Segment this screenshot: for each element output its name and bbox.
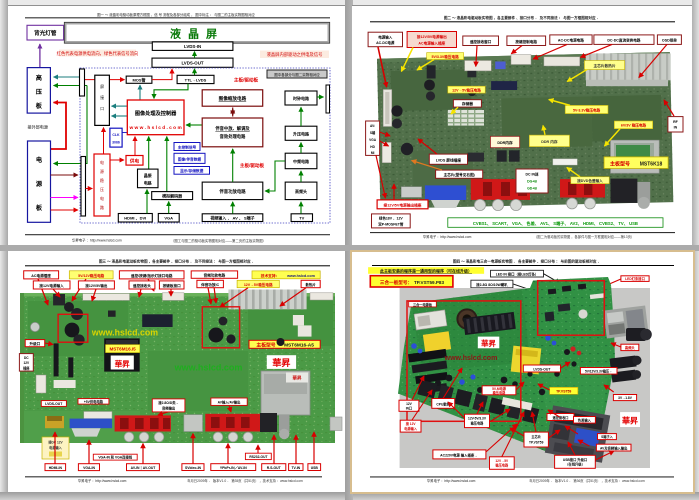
svg-text:12V: 12V (406, 402, 413, 406)
svg-text:电源输入: 电源输入 (378, 34, 392, 39)
svg-text:主板型号: 主板型号 (256, 342, 275, 349)
svg-text:DC IN迷: DC IN迷 (525, 172, 539, 177)
svg-text:12V-5V/3.3V: 12V-5V/3.3V (468, 417, 487, 421)
svg-text:稳: 稳 (100, 178, 104, 183)
svg-text:板: 板 (36, 102, 43, 110)
svg-text:电路: 电路 (144, 180, 152, 186)
svg-text:LED IN 接口（接LED灯条）: LED IN 接口（接LED灯条） (496, 271, 539, 276)
svg-text:电源输入: 电源输入 (49, 445, 63, 450)
svg-text:晶振: 晶振 (144, 172, 152, 178)
svg-text:LVDS-OUT: LVDS-OUT (533, 367, 551, 371)
svg-text:高: 高 (36, 74, 42, 82)
svg-text:电: 电 (100, 160, 104, 165)
svg-text:www.hslcd.com: www.hslcd.com (286, 274, 315, 278)
svg-text:S端: S端 (370, 130, 376, 135)
svg-text:主板/驱动板: 主板/驱动板 (240, 162, 265, 169)
svg-text:5V-3.3V稳压电路: 5V-3.3V稳压电路 (573, 107, 601, 112)
svg-text:AC220V电源 输入插座 ．: AC220V电源 输入插座 ． (440, 453, 478, 458)
svg-text:DC-DC直流变换电路: DC-DC直流变换电路 (607, 38, 641, 43)
svg-text:GD+B: GD+B (527, 187, 537, 191)
svg-text:12V→5V稳压电路: 12V→5V稳压电路 (244, 282, 273, 287)
svg-text:TTL→LVDS: TTL→LVDS (185, 77, 207, 82)
svg-text:口: 口 (100, 107, 104, 111)
svg-text:華昇: 華昇 (622, 416, 638, 426)
svg-text:高频头: 高频头 (625, 345, 636, 350)
svg-text:双P-MOSFET管: 双P-MOSFET管 (377, 222, 404, 227)
svg-text:存储器: 存储器 (462, 101, 473, 106)
svg-text:YPbPr-IN／AV-IN: YPbPr-IN／AV-IN (220, 465, 247, 470)
svg-text:www.hslcd.com: www.hslcd.com (91, 328, 158, 338)
svg-text:華昇: 華昇 (115, 358, 131, 368)
svg-text:图四 ～ 液晶彩电三合一电源板实物图 ． 各主要部件 、接口: 图四 ～ 液晶彩电三合一电源板实物图 ． 各主要部件 、接口分布 ： 与前图的驱… (453, 259, 601, 264)
svg-text:主芯片: 主芯片 (531, 434, 541, 439)
svg-text:12V: 12V (23, 361, 30, 365)
svg-text:遥控接收头: 遥控接收头 (133, 283, 151, 288)
svg-text:图二 ～ 液晶彩电驱动板实物图 ，各主要部件 、接口分布 ．: 图二 ～ 液晶彩电驱动板实物图 ，各主要部件 、接口分布 ． 及不同接法 ： 与… (444, 15, 600, 20)
svg-text:w w w . h s l c d . c o m: w w w . h s l c d . c o m (128, 125, 181, 131)
svg-text:LVDS-OUT: LVDS-OUT (181, 61, 203, 66)
svg-text:按键控制电路: 按键控制电路 (515, 39, 537, 44)
svg-text:压: 压 (100, 187, 104, 192)
svg-text:華昇: 華昇 (293, 375, 302, 382)
svg-text:主板/驱动板: 主板/驱动板 (234, 77, 259, 84)
svg-text:华昇电子 ：http://www.hslcd.com: 华昇电子 ：http://www.hslcd.com (423, 234, 472, 239)
svg-text:www.hslcd.com: www.hslcd.com (444, 355, 498, 362)
svg-text:色差输入: 色差输入 (578, 418, 592, 423)
svg-text:技术支持：: 技术支持： (261, 273, 279, 278)
svg-text:接外部电源: 接外部电源 (28, 124, 48, 130)
svg-text:电: 电 (36, 156, 43, 164)
svg-text:3V→1.8V: 3V→1.8V (618, 396, 633, 400)
svg-text:接12V电源输入: 接12V电源输入 (39, 283, 64, 288)
svg-text:升压电路: 升压电路 (293, 131, 309, 137)
svg-text:MST6K18: MST6K18 (640, 161, 663, 167)
svg-text:压: 压 (36, 88, 43, 96)
svg-text:伴音中放、解调及: 伴音中放、解调及 (214, 125, 250, 132)
svg-text:LVDS-IN: LVDS-IN (184, 44, 201, 49)
svg-text:路: 路 (100, 205, 104, 210)
svg-text:图像缩放电路: 图像缩放电路 (219, 95, 247, 102)
svg-text:AV输入/AV输出: AV输入/AV输出 (218, 400, 241, 405)
svg-text:TV: TV (299, 216, 304, 221)
svg-text:IN口: IN口 (406, 406, 412, 411)
svg-text:AV:: AV: (370, 124, 375, 128)
svg-text:年月日2009年 ． 版本V1.0 ． 第36页（共51页）: 年月日2009年 ． 版本V1.0 ． 第36页（共51页） ，技术支持 ：ww… (529, 478, 645, 483)
svg-text:插座: 插座 (23, 365, 30, 370)
svg-text:12V→5V稳压电路: 12V→5V稳压电路 (452, 87, 481, 92)
svg-text:接DVD色差输入: 接DVD色差输入 (577, 178, 603, 183)
svg-text:AC电源输入插座: AC电源输入插座 (418, 40, 445, 45)
svg-text:MST6M16-A5: MST6M16-A5 (284, 343, 314, 349)
svg-text:稳压电路: 稳压电路 (493, 390, 507, 395)
svg-text:按键板接口: 按键板接口 (163, 283, 181, 288)
svg-text:三合一板型号：: 三合一板型号： (380, 279, 412, 286)
svg-text:MST6M16.I5: MST6M16.I5 (109, 347, 136, 352)
svg-text:3066: 3066 (112, 141, 120, 145)
svg-text:图三 ～ 液晶彩电驱动板实物图 ，各主要部件 、接口分布 ．: 图三 ～ 液晶彩电驱动板实物图 ，各主要部件 、接口分布 ． 及不同接法 ： 与… (99, 259, 255, 264)
svg-text:USB: USB (311, 466, 319, 470)
svg-text:VGA: VGA (164, 216, 173, 221)
svg-text:DC: DC (24, 356, 29, 360)
svg-text:VGA-IN 和 VGA连接线: VGA-IN 和 VGA连接线 (98, 455, 132, 460)
svg-text:USB接口 升级口: USB接口 升级口 (563, 457, 587, 462)
svg-text:AC-DC电源: AC-DC电源 (376, 40, 395, 45)
svg-text:红色代表电源供电流向，绿色代表信号流向: 红色代表电源供电流向，绿色代表信号流向 (57, 50, 139, 57)
svg-text:接: 接 (100, 95, 104, 100)
svg-text:DG+B: DG+B (527, 180, 537, 184)
svg-text:遥控接收口: 遥控接收口 (553, 415, 569, 420)
svg-text:接2-8Ω 8Ω/10W喇叭: 接2-8Ω 8Ω/10W喇叭 (476, 282, 508, 287)
svg-text:MOS管: MOS管 (132, 76, 145, 82)
svg-text:图像处理及控制器: 图像处理及控制器 (135, 109, 177, 117)
svg-text:華昇: 華昇 (272, 357, 290, 368)
svg-text:LVDS 屏线插座: LVDS 屏线插座 (436, 157, 462, 162)
svg-text:高频头: 高频头 (295, 188, 307, 194)
svg-text:主板型号: 主板型号 (610, 160, 630, 167)
svg-text:VGA-IN: VGA-IN (83, 466, 95, 470)
svg-text:（图二为驱动板的实物图 ，各部件与图一方框图相对应——第13: （图二为驱动板的实物图 ，各部件与图一方框图相对应——第13页） (534, 234, 634, 239)
svg-text:+5V供电电路: +5V供电电路 (84, 399, 104, 404)
svg-text:CVBS1、 SCART、 VGA、 色差、 AV1、 S端: CVBS1、 SCART、 VGA、 色差、 AV1、 S端子、 AV2、 HD… (473, 220, 638, 227)
svg-text:音频输出: 音频输出 (162, 406, 176, 411)
svg-text:中频电路: 中频电路 (293, 158, 309, 164)
svg-text:音效处理电路: 音效处理电路 (220, 133, 246, 140)
svg-text:华昇电子 ：http://www.hslcd.com: 华昇电子 ：http://www.hslcd.com (427, 478, 476, 483)
svg-text:接12V/5V电源输出: 接12V/5V电源输出 (417, 34, 447, 39)
svg-text:DDR 内存: DDR 内存 (541, 139, 558, 144)
svg-text:主芯片(型号见右图): 主芯片(型号见右图) (444, 172, 476, 177)
svg-text:HDMI 、DVI: HDMI 、DVI (124, 216, 146, 221)
svg-text:HD: HD (370, 145, 375, 149)
svg-text:RS232-OUT: RS232-OUT (249, 455, 267, 459)
svg-text:年月日2009年 ． 版本V1.0 ． 第35页（共51页）: 年月日2009年 ． 版本V1.0 ． 第35页（共51页） ，技术支持 ：ww… (187, 478, 303, 483)
svg-text:主控制信号: 主控制信号 (178, 144, 197, 149)
svg-text:5V/12V/3.3V稳压←: 5V/12V/3.3V稳压← (585, 369, 612, 374)
svg-text:图一 ～ 液晶彩电驱动板原理方框图 ，信 号 流程及各部分组: 图一 ～ 液晶彩电驱动板原理方框图 ，信 号 流程及各部分组成 ， 图中标注 ：… (97, 12, 255, 17)
svg-text:稳压电路: 稳压电路 (471, 420, 485, 425)
svg-text:接 12V: 接 12V (405, 421, 417, 426)
svg-text:接12V/5V输出: 接12V/5V输出 (85, 283, 107, 288)
svg-text:视频输入 ． AV 、 S端子: 视频输入 ． AV 、 S端子 (210, 215, 254, 221)
svg-text:SVideo-IN: SVideo-IN (185, 466, 202, 470)
svg-text:OSD菜单: OSD菜单 (662, 38, 677, 43)
svg-text:图像/伴音数据: 图像/伴音数据 (178, 156, 201, 161)
svg-text:板: 板 (36, 204, 43, 212)
svg-text:（在线升级）: （在线升级） (565, 462, 585, 467)
svg-text:CLK: CLK (112, 133, 120, 137)
svg-text:散热片: 散热片 (306, 282, 317, 287)
svg-text:5V/3.3V稳压电路: 5V/3.3V稳压电路 (432, 54, 460, 59)
svg-text:供电: 供电 (129, 158, 140, 165)
svg-text:TV-IN: TV-IN (291, 466, 300, 470)
svg-text:时钟电路: 时钟电路 (293, 95, 309, 101)
svg-text:伴音功放IC: 伴音功放IC (200, 282, 219, 287)
svg-text:电: 电 (100, 196, 104, 201)
svg-text:液晶屏内部驱动之供电及信号: 液晶屏内部驱动之供电及信号 (267, 51, 323, 58)
svg-text:MI: MI (371, 151, 375, 155)
svg-text:稳压电路: 稳压电路 (495, 463, 509, 468)
svg-text:6V/3V 稳压电路: 6V/3V 稳压电路 (621, 123, 647, 128)
svg-text:（图工与图二的驱动板实物图相对应——第二页的主板实物图）: （图工与图二的驱动板实物图相对应——第二页的主板实物图） (171, 238, 266, 243)
svg-text:源: 源 (100, 169, 104, 174)
svg-text:AV-IN｜AV-OUT: AV-IN｜AV-OUT (131, 465, 157, 470)
svg-text:R.S-OUT: R.S-OUT (267, 466, 282, 470)
svg-text:遥控/按键/指示灯接口电路: 遥控/按键/指示灯接口电路 (131, 273, 173, 278)
svg-text:LVDS-OUT: LVDS-OUT (45, 402, 63, 406)
svg-text:S端子入: S端子入 (601, 434, 614, 439)
svg-text:模拟解码器: 模拟解码器 (162, 193, 183, 199)
svg-text:遥控接收窗口: 遥控接收窗口 (470, 39, 492, 44)
svg-text:HDMI-IN: HDMI-IN (49, 466, 63, 470)
svg-text:AC电源插座: AC电源插座 (31, 273, 51, 278)
svg-text:升级口: 升级口 (30, 341, 41, 346)
svg-text:三合一电源板: 三合一电源板 (413, 302, 433, 307)
svg-text:音频功放电路: 音频功放电路 (204, 273, 226, 278)
svg-text:TP.VST59.P83: TP.VST59.P83 (414, 280, 444, 285)
svg-text:DDR内存: DDR内存 (497, 140, 513, 145)
svg-text:AC-DC电源电路: AC-DC电源电路 (558, 38, 584, 43)
svg-text:伴音功放电路: 伴音功放电路 (218, 188, 246, 195)
svg-text:華昇: 華昇 (481, 339, 496, 348)
svg-text:5V/12V稳压电路: 5V/12V稳压电路 (78, 273, 105, 278)
svg-text:源: 源 (36, 180, 43, 188)
svg-text:绿色18V ．12V: 绿色18V ．12V (379, 216, 404, 221)
svg-text:背光灯管: 背光灯管 (34, 29, 57, 37)
svg-text:AV及音频输入输出: AV及音频输入输出 (600, 445, 628, 450)
svg-text:TP.VST59: TP.VST59 (556, 390, 571, 394)
svg-text:电源输入: 电源输入 (404, 426, 418, 431)
svg-text:www.hslcd.com: www.hslcd.com (174, 363, 243, 373)
svg-text:屏: 屏 (100, 85, 104, 89)
svg-text:接12V/5V电源输出插座: 接12V/5V电源输出插座 (383, 202, 422, 207)
svg-text:接2.8Ω/D类→: 接2.8Ω/D类→ (157, 400, 178, 405)
svg-text:TP.VST59: TP.VST59 (529, 440, 544, 444)
svg-text:IN: IN (674, 126, 678, 130)
svg-text:液晶屏: 液晶屏 (170, 27, 224, 41)
svg-text:图中各部分与图二实物相对应: 图中各部分与图二实物相对应 (274, 72, 320, 77)
svg-text:12V→5V: 12V→5V (495, 459, 509, 463)
svg-text:华昇电子 ：http://www.hslcd.com: 华昇电子 ：http://www.hslcd.com (72, 238, 122, 243)
svg-text:LED灯条接口: LED灯条接口 (625, 276, 645, 281)
svg-text:显示/存储数据: 显示/存储数据 (180, 168, 203, 173)
svg-text:此主板安装的程序是一通用型的程序（可在线升级）: 此主板安装的程序是一通用型的程序（可在线升级） (380, 267, 472, 273)
svg-text:VGA: VGA (369, 138, 377, 142)
svg-text:主芯片散热片: 主芯片散热片 (593, 63, 615, 68)
svg-text:华昇电子 ：http://www.hslcd.com: 华昇电子 ：http://www.hslcd.com (78, 478, 127, 483)
